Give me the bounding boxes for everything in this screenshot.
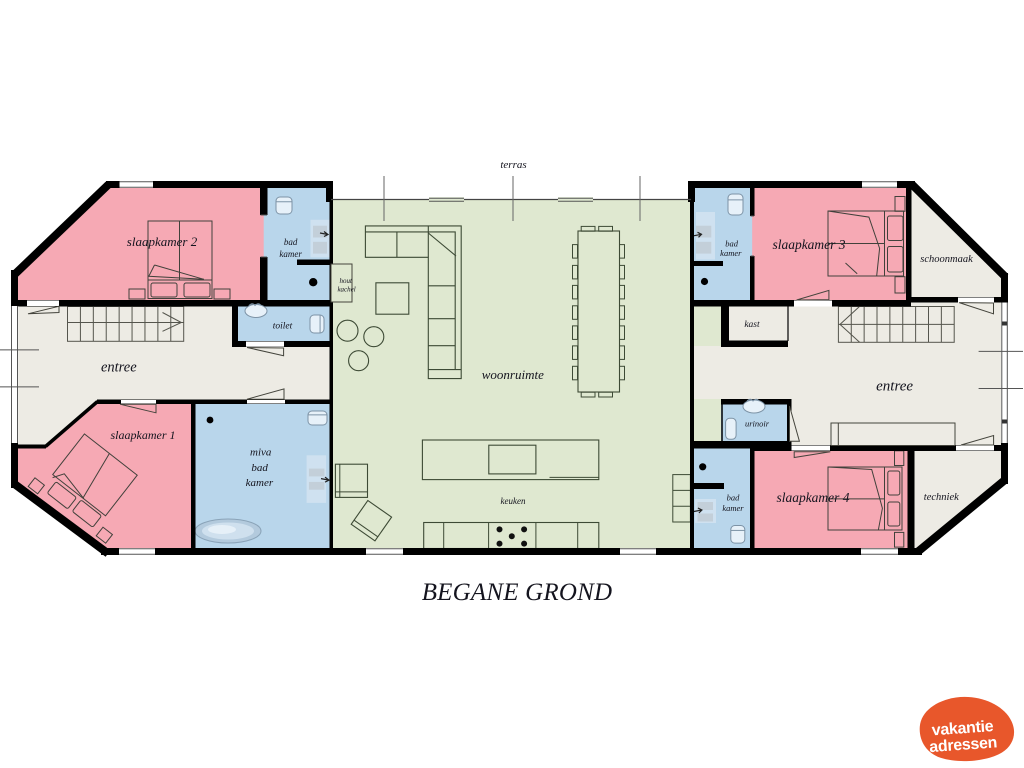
svg-text:keuken: keuken	[501, 496, 526, 506]
svg-text:bad: bad	[284, 237, 298, 247]
svg-text:kachel: kachel	[337, 286, 355, 294]
svg-text:terras: terras	[500, 159, 526, 171]
svg-text:kamer: kamer	[246, 477, 274, 489]
svg-text:slaapkamer 4: slaapkamer 4	[776, 490, 849, 505]
svg-text:hout: hout	[339, 277, 353, 285]
svg-text:slaapkamer 2: slaapkamer 2	[127, 234, 198, 249]
svg-text:bad: bad	[725, 239, 739, 249]
svg-text:entree: entree	[876, 379, 913, 395]
svg-text:bad: bad	[251, 462, 268, 474]
svg-text:woonruimte: woonruimte	[482, 367, 544, 382]
svg-text:bad: bad	[727, 493, 741, 503]
svg-text:miva: miva	[250, 447, 272, 459]
svg-text:kamer: kamer	[279, 249, 302, 259]
svg-text:techniek: techniek	[924, 492, 959, 503]
svg-text:kamer: kamer	[722, 503, 744, 513]
svg-text:entree: entree	[101, 360, 137, 376]
svg-text:slaapkamer 1: slaapkamer 1	[111, 428, 176, 442]
svg-text:kamer: kamer	[720, 248, 742, 258]
svg-text:kast: kast	[744, 320, 760, 330]
svg-text:toilet: toilet	[273, 322, 293, 332]
svg-text:BEGANE GROND: BEGANE GROND	[422, 579, 613, 606]
svg-text:schoonmaak: schoonmaak	[920, 254, 973, 265]
svg-text:urinoir: urinoir	[745, 419, 770, 429]
svg-text:slaapkamer 3: slaapkamer 3	[772, 237, 845, 252]
